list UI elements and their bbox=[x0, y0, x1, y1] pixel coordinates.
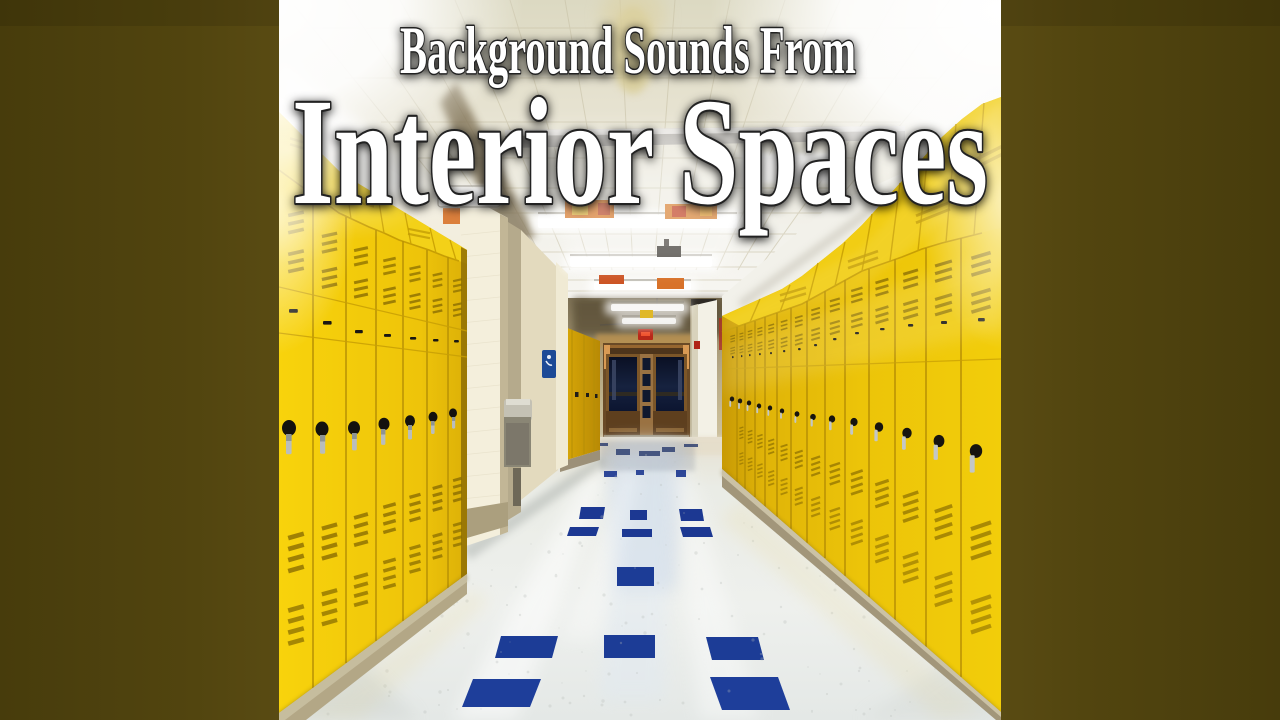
svg-text:Interior Spaces: Interior Spaces bbox=[292, 68, 988, 237]
